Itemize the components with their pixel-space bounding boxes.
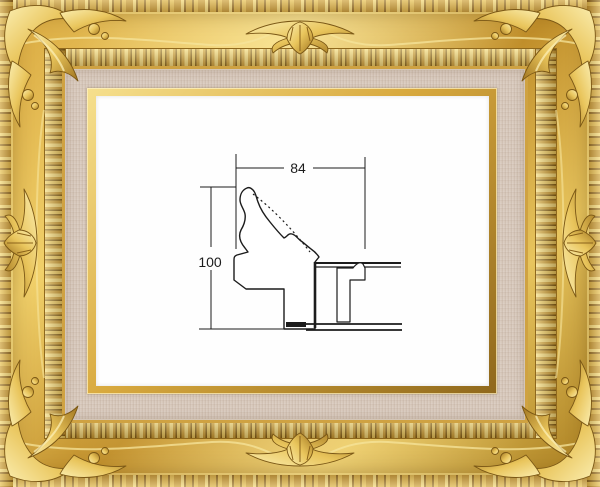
frame-eggdart-left xyxy=(45,49,65,438)
moulding-profile-outline xyxy=(234,188,319,329)
width-dimension-label: 84 xyxy=(290,160,306,176)
framed-moulding-sample: 84 100 xyxy=(0,0,600,487)
picture-canvas: 84 100 xyxy=(96,96,489,386)
backing-clip-bar xyxy=(286,322,306,327)
stretcher-bar-profile xyxy=(337,263,365,322)
moulding-cross-section-diagram: 84 100 xyxy=(96,96,489,386)
frame-eggdart-bottom xyxy=(45,418,556,438)
frame-eggdart-right xyxy=(536,49,556,438)
height-dimension-label: 100 xyxy=(198,254,222,270)
frame-eggdart-top xyxy=(45,49,556,69)
